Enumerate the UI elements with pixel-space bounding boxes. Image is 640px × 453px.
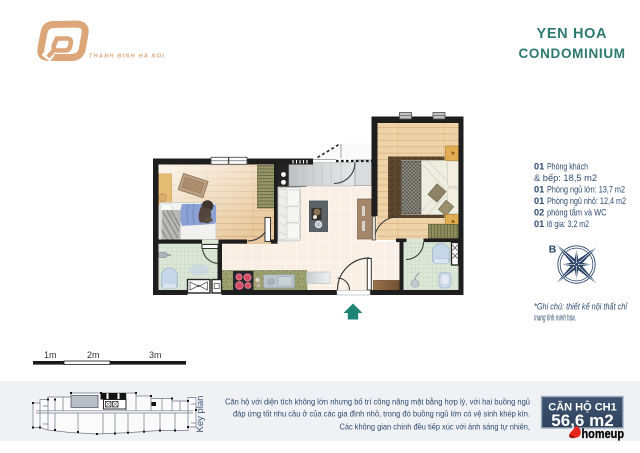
- svg-text:Phòng ngủ nhỏ: 12,4 m2: Phòng ngủ nhỏ: 12,4 m2: [547, 196, 626, 206]
- svg-text:01: 01: [534, 196, 544, 206]
- svg-text:phòng tắm và WC: phòng tắm và WC: [547, 208, 607, 218]
- svg-text:đáp ứng tốt nhu cầu ở của các: đáp ứng tốt nhu cầu ở của các gia đình n…: [233, 409, 530, 419]
- svg-text:Căn hộ với diện tích không lớn: Căn hộ với diện tích không lớn nhưng bố …: [225, 397, 530, 407]
- svg-text:CONDOMINIUM: CONDOMINIUM: [519, 46, 626, 61]
- svg-text:01: 01: [534, 219, 544, 229]
- svg-text:01: 01: [534, 185, 544, 195]
- svg-text:Phòng khách: Phòng khách: [547, 162, 588, 172]
- svg-text:01: 01: [534, 162, 544, 172]
- svg-text:1m: 1m: [44, 350, 57, 360]
- svg-text:Các không gian chính đều tiếp: Các không gian chính đều tiếp xúc với án…: [340, 422, 531, 432]
- svg-text:*Ghi chú: thiết kế nội thất ch: *Ghi chú: thiết kế nội thất chỉ: [534, 302, 628, 312]
- svg-text:lô gia: 3,2 m2: lô gia: 3,2 m2: [547, 219, 589, 229]
- svg-text:Phòng ngủ lớn: 13,7 m2: Phòng ngủ lớn: 13,7 m2: [547, 185, 625, 195]
- svg-text:THANH BINH HA NOI: THANH BINH HA NOI: [89, 54, 165, 60]
- svg-text:Key plan: Key plan: [195, 396, 206, 433]
- svg-text:YEN HOA: YEN HOA: [537, 26, 608, 42]
- svg-text:2m: 2m: [87, 350, 100, 360]
- svg-text:B: B: [549, 244, 557, 256]
- svg-text:02: 02: [534, 208, 544, 218]
- svg-text:3m: 3m: [149, 350, 162, 360]
- svg-text:homeup: homeup: [582, 426, 625, 441]
- svg-text:mang tính minh họa.: mang tính minh họa.: [534, 313, 576, 323]
- svg-text:& bếp: 18,5 m2: & bếp: 18,5 m2: [534, 173, 597, 183]
